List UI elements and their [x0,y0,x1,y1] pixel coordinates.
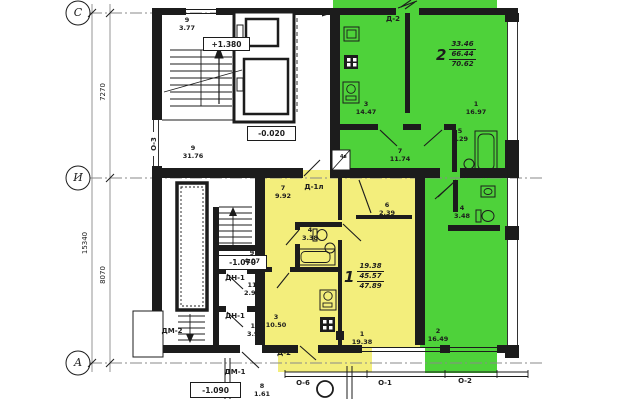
door-mark-dn1-upper: ДН-1 [219,274,251,282]
apartment1-area-label: 1 19.3845.5747.89 [344,262,384,291]
room-label-apt2-bedroom: 216.49 [424,328,452,343]
room-label-stair-upper: 93.77 [174,17,200,32]
window-mark-o6: О-6 [288,379,318,387]
room-label-vestibule-upper: 112.94 [238,282,266,297]
elevation-entrance: -1.090 [190,382,241,398]
room-label-apt1-hall: 79.92 [270,185,296,200]
elevation-mid-landing: +1.380 [203,37,250,51]
room-label-apt2-living: 116.97 [462,101,490,116]
room-label-stair-lower: 94.07 [238,250,266,265]
vent-mark: 4в [340,154,347,160]
dimension-total: 15340 [81,228,89,258]
room-label-apt2-wc: 43.48 [450,205,474,220]
room-label-porch: 81.61 [250,383,274,398]
floor-plan-drawing [0,0,640,400]
grid-row-c: С [66,6,90,19]
grid-row-a: А [66,356,90,369]
room-label-apt1-kitchen: 310.50 [262,314,290,329]
room-label-apt1-bathroom: 43.38 [298,227,322,242]
dimension-lower: 8070 [99,260,107,290]
elevator-shafts [234,12,297,122]
window-mark-o2: О-2 [450,377,480,385]
stairs-upper [162,47,242,120]
vent-shaft [332,150,350,170]
window-mark-o3: О-3 [150,132,158,156]
elevation-ground: -0.020 [247,126,296,141]
door-mark-d2-kitchen: Д-2 [268,349,300,357]
room-label-apt2-kitchen: 314.47 [352,101,380,116]
room-label-apt1-living: 119.38 [348,331,376,346]
floor-plan-screenshot: С И А 7270 15340 8070 +1.380 -0.020 -1.0… [0,0,640,400]
room-label-apt2-bathroom: 53.29 [448,128,472,143]
door-mark-dn1-lower: ДН-1 [219,312,251,320]
apartment2-area-label: 2 33.4666.4470.62 [436,40,476,69]
door-mark-dm1: ДМ-1 [219,368,251,376]
door-mark-d1l: Д-1л [298,183,330,191]
room-label-apt1-closet: 62.39 [374,202,400,217]
door-mark-dm2: ДМ-2 [156,327,188,335]
window-mark-o1: О-1 [370,379,400,387]
door-mark-d2-top: Д-2 [377,15,409,23]
room-label-apt2-hall: 711.74 [386,148,414,163]
grid-row-i: И [66,171,90,184]
room-label-lobby: 931.76 [178,145,208,160]
dimension-upper: 7270 [99,77,107,107]
